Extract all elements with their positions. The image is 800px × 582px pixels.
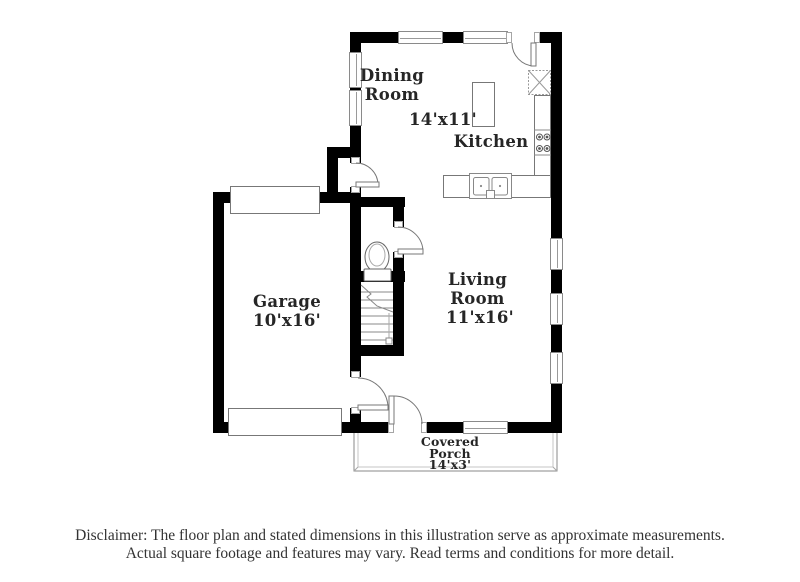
garage-door-bottom	[228, 408, 342, 436]
disclaimer-line-1: Disclaimer: The floor plan and stated di…	[0, 527, 800, 545]
room-name: Covered Porch	[409, 436, 491, 459]
door-swing-kitchen-entry	[512, 43, 536, 66]
door-jamb	[534, 32, 540, 43]
room-name: Garage	[246, 292, 328, 311]
door-jamb	[394, 251, 403, 258]
door-jamb	[351, 186, 360, 193]
door-jamb	[506, 32, 512, 43]
door-swing-front-door	[389, 396, 422, 424]
door-jamb	[351, 407, 360, 414]
wall-stairs-bottom	[350, 345, 404, 356]
dining-room-label: Dining Room	[351, 66, 433, 104]
room-dimensions: 10'x16'	[246, 311, 328, 330]
wall-jog-vertical	[327, 147, 338, 203]
door-jamb	[351, 371, 360, 378]
disclaimer-text: Disclaimer: The floor plan and stated di…	[0, 527, 800, 562]
window-right-1	[550, 238, 563, 270]
door-jamb	[421, 422, 427, 433]
door-swing-powder-room	[398, 227, 423, 254]
disclaimer-line-2: Actual square footage and features may v…	[0, 545, 800, 563]
window-top-1	[398, 31, 443, 44]
refrigerator	[529, 71, 551, 95]
room-dimensions: 14'x3'	[409, 459, 491, 471]
door-jamb	[388, 422, 394, 433]
floor-plan-illustration: Dining Room 14'x11' Kitchen Garage 10'x1…	[0, 0, 800, 582]
wall-garage-left	[213, 192, 224, 433]
door-jamb	[394, 221, 403, 228]
window-right-2	[550, 293, 563, 325]
room-dimensions: 11'x16'	[446, 308, 509, 327]
wall-stairs-right	[393, 271, 404, 356]
garage-label: Garage 10'x16'	[246, 292, 328, 330]
living-room-label: Living Room 11'x16'	[446, 270, 509, 327]
door-swing-garage-entry	[358, 378, 388, 410]
door-swing-closet	[356, 163, 379, 187]
kitchen-counter-bottom	[443, 175, 551, 198]
covered-porch-label: Covered Porch 14'x3'	[409, 436, 491, 471]
window-porch	[463, 421, 508, 434]
dining-kitchen-dimensions: 14'x11'	[402, 110, 484, 129]
window-right-3	[550, 352, 563, 384]
kitchen-label: Kitchen	[450, 132, 532, 151]
garage-door-top	[230, 186, 320, 214]
window-top-2	[463, 31, 508, 44]
door-jamb	[351, 157, 360, 164]
kitchen-counter-right	[534, 95, 551, 176]
staircase	[361, 285, 393, 344]
room-name: Living Room	[446, 270, 509, 308]
